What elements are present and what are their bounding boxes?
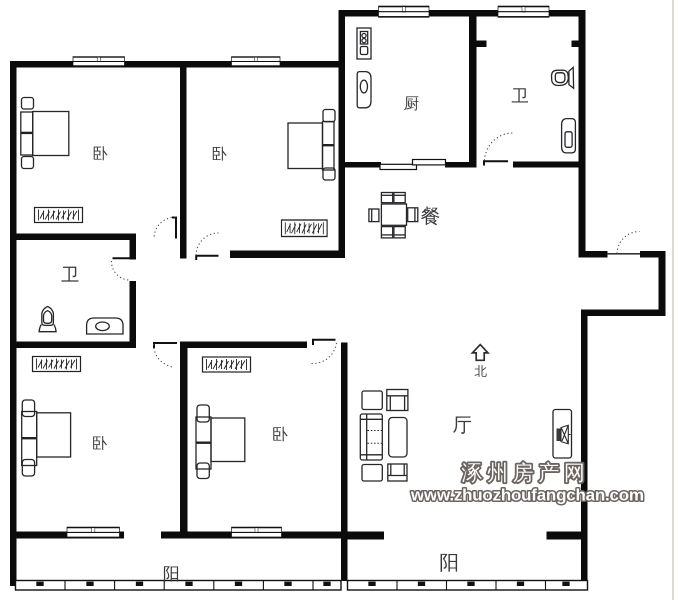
svg-text:www.zhuozhoufangchan.com: www.zhuozhoufangchan.com: [410, 486, 644, 505]
